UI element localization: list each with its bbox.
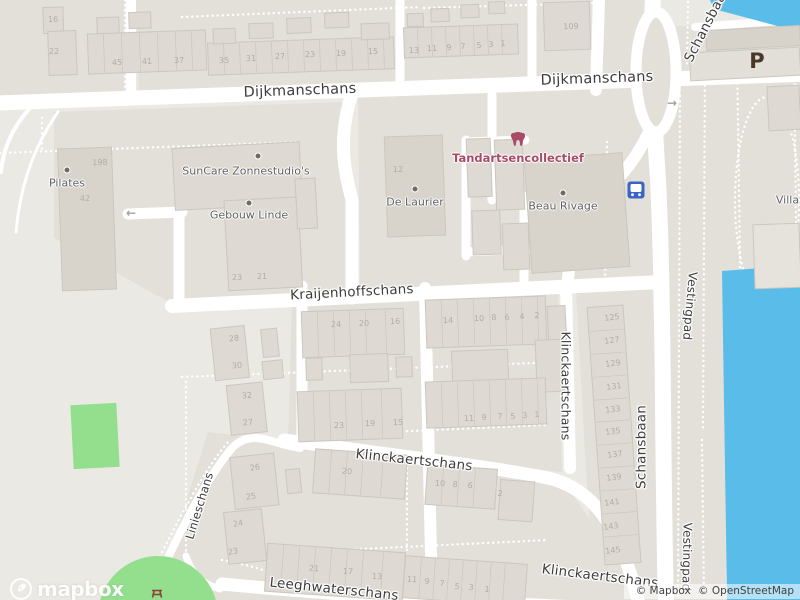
house-number: 8 xyxy=(491,314,496,322)
house-number: 23 xyxy=(227,547,238,557)
house-number: 45 xyxy=(112,59,122,67)
street-label: Schansbaan xyxy=(635,405,649,489)
poi-dot xyxy=(255,153,262,160)
oneway-arrow-icon: → xyxy=(667,96,677,110)
house-number: 21 xyxy=(309,565,320,574)
house-number: 141 xyxy=(604,498,620,508)
house-number: 133 xyxy=(605,405,621,415)
house-number: 198 xyxy=(92,159,108,168)
house-number: 16 xyxy=(48,16,58,24)
house-number: 7 xyxy=(439,580,445,588)
house-number: 15 xyxy=(368,48,378,56)
house-number: 13 xyxy=(372,573,383,582)
house-number: 17 xyxy=(343,568,354,577)
house-number: 20 xyxy=(359,320,369,328)
street-label: Schansbaan xyxy=(683,0,733,65)
house-number: 19 xyxy=(336,50,346,58)
house-number: 8 xyxy=(452,481,458,489)
house-number: 7 xyxy=(497,413,502,421)
house-number: 27 xyxy=(243,418,254,427)
mapbox-wordmark: mapbox xyxy=(37,577,124,600)
tooth-icon xyxy=(510,131,526,151)
house-number: 109 xyxy=(563,23,579,32)
attribution-osm-link[interactable]: © OpenStreetMap xyxy=(698,585,794,597)
house-number: 27 xyxy=(275,53,285,61)
street-label: Klinckaertschans xyxy=(559,332,572,441)
poi-label: Gebouw Linde xyxy=(210,210,288,221)
house-number: 14 xyxy=(443,317,453,325)
house-number: 9 xyxy=(481,414,486,422)
house-number: 21 xyxy=(257,273,267,281)
oneway-arrow-icon: ← xyxy=(126,206,136,220)
street-label: Klinckaertschans xyxy=(355,448,473,474)
poi-label: Pilates xyxy=(49,178,85,189)
house-number: 19 xyxy=(365,420,375,428)
house-number: 1 xyxy=(484,586,490,594)
house-number: 135 xyxy=(605,427,621,437)
house-number: 12 xyxy=(393,166,403,174)
house-number: 5 xyxy=(476,42,481,50)
house-number: 23 xyxy=(334,422,344,430)
house-number: 37 xyxy=(174,57,184,65)
label-layer: Tandartsencollectief P → ← Dijkmanschans… xyxy=(0,0,800,600)
poi-label-dentist: Tandartsencollectief xyxy=(452,151,584,165)
house-number: 10 xyxy=(474,315,484,323)
house-number: 3 xyxy=(468,584,474,592)
house-number: 10 xyxy=(435,480,446,489)
street-label: Kraijenhoffschans xyxy=(290,283,414,303)
house-number: 30 xyxy=(232,361,243,370)
attribution-bar: © Mapbox © OpenStreetMap xyxy=(624,584,800,599)
house-number: 129 xyxy=(605,359,621,369)
house-number: 1 xyxy=(534,411,539,419)
house-number: 125 xyxy=(604,313,620,323)
bus-stop-icon xyxy=(628,182,645,203)
house-number: 2 xyxy=(534,312,539,320)
house-number: 9 xyxy=(424,578,430,586)
house-number: 41 xyxy=(142,58,152,66)
house-number: 26 xyxy=(249,463,260,472)
house-number: 137 xyxy=(607,450,623,460)
house-number: 5 xyxy=(510,413,515,421)
house-number: 23 xyxy=(305,51,315,59)
house-number: 3 xyxy=(522,412,527,420)
house-number: 127 xyxy=(604,336,620,346)
house-number: 5 xyxy=(454,583,460,591)
house-number: 6 xyxy=(504,314,509,322)
poi-label: SunCare Zonnestudio's xyxy=(182,166,309,177)
house-number: 32 xyxy=(242,391,253,400)
poi-dot xyxy=(246,200,253,207)
street-label: Vestingpad xyxy=(680,523,693,592)
house-number: 11 xyxy=(427,45,437,53)
house-number: 15 xyxy=(393,419,403,427)
map-canvas[interactable]: Tandartsencollectief P → ← Dijkmanschans… xyxy=(0,0,800,600)
house-number: 143 xyxy=(603,522,619,532)
house-number: 23 xyxy=(232,274,242,282)
poi-label: Villa B xyxy=(776,195,800,206)
street-label: Dijkmanschans xyxy=(243,82,356,100)
house-number: 6 xyxy=(467,482,473,490)
attribution-mapbox-link[interactable]: © Mapbox xyxy=(636,585,691,597)
house-number: 42 xyxy=(80,195,90,203)
house-number: 28 xyxy=(229,334,240,343)
mapbox-logo-icon xyxy=(10,578,32,600)
house-number: 25 xyxy=(245,492,256,501)
poi-dot xyxy=(412,186,419,193)
house-number: 35 xyxy=(219,57,229,65)
house-number: 9 xyxy=(446,44,451,52)
house-number: 13 xyxy=(409,47,419,55)
street-label: Dijkmanschans xyxy=(540,70,653,88)
house-number: 22 xyxy=(49,48,59,56)
house-number: 7 xyxy=(460,43,465,51)
house-number: 24 xyxy=(232,519,243,529)
house-number: 31 xyxy=(246,55,256,63)
parking-icon: P xyxy=(749,49,764,73)
house-number: 20 xyxy=(342,468,353,477)
house-number: 131 xyxy=(606,382,622,392)
mapbox-logo[interactable]: mapbox xyxy=(10,577,124,600)
street-label: Linieschans xyxy=(184,471,215,541)
poi-dot xyxy=(560,190,567,197)
poi-dot xyxy=(64,167,71,174)
poi-label: Beau Rivage xyxy=(528,201,597,212)
street-label: Vestingpad xyxy=(681,271,699,341)
house-number: 11 xyxy=(407,576,418,585)
picnic-icon xyxy=(150,585,164,600)
house-number: 24 xyxy=(331,321,341,329)
house-number: 1 xyxy=(500,40,505,48)
house-number: 11 xyxy=(464,415,474,423)
house-number: 145 xyxy=(605,546,621,556)
house-number: 139 xyxy=(606,473,622,483)
house-number: 3 xyxy=(488,41,493,49)
poi-label: De Laurier xyxy=(386,197,443,208)
house-number: 4 xyxy=(519,313,524,321)
house-number: 16 xyxy=(390,318,400,326)
house-number: 2 xyxy=(497,490,503,498)
